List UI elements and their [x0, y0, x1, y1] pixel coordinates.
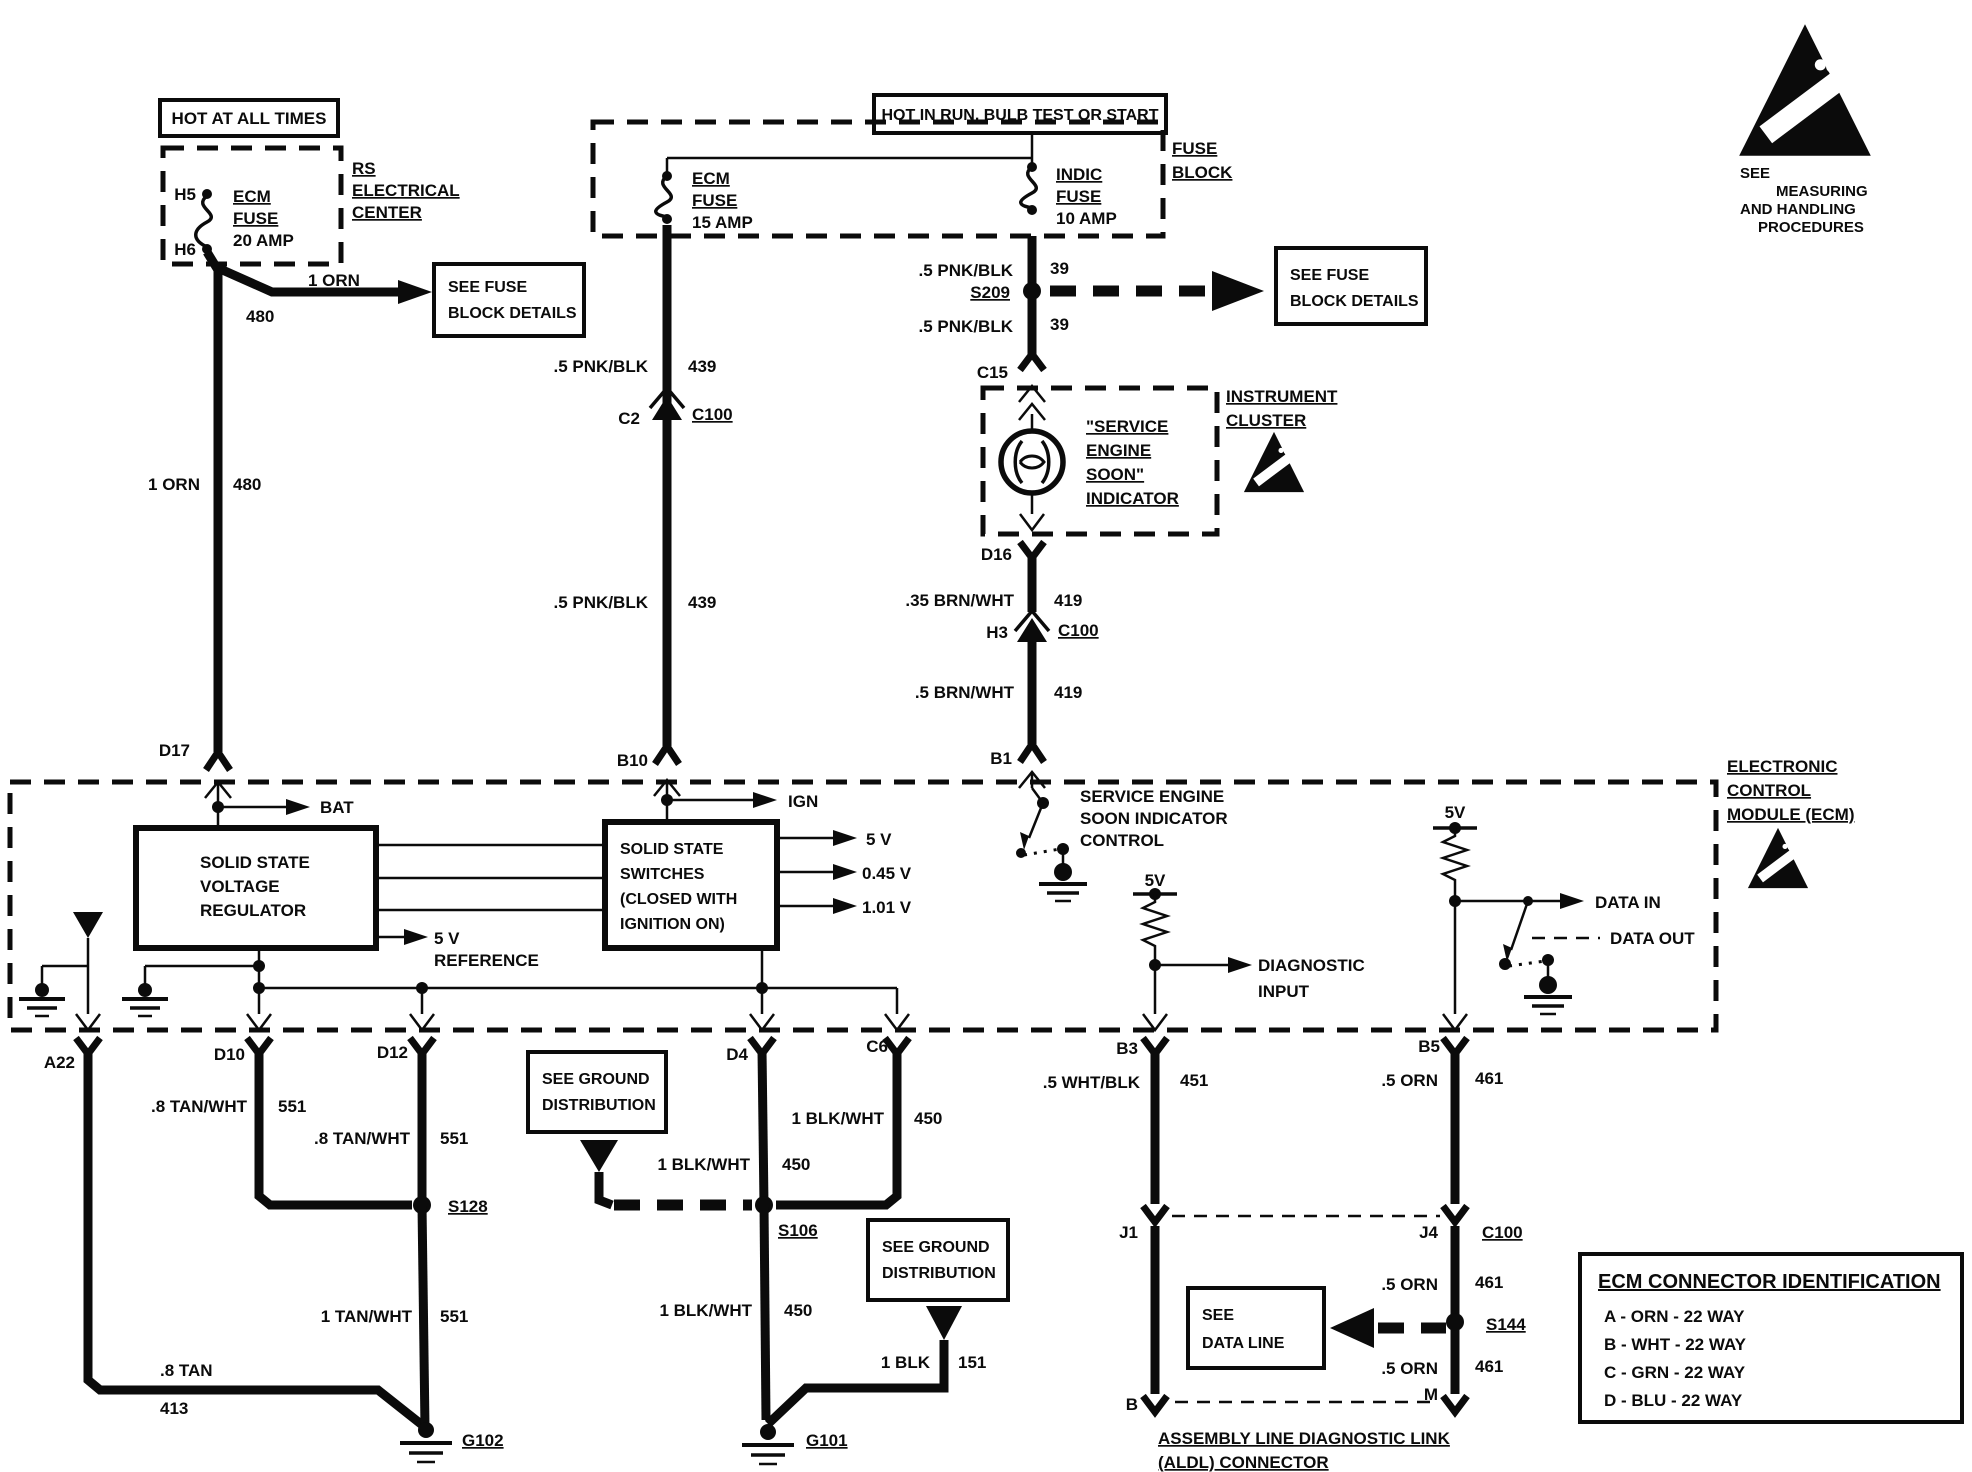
- rs-electrical-center: H5 H6 ECM FUSE 20 AMP RS ELECTRICAL CENT…: [163, 148, 460, 264]
- wire-tan-d10-color: .8 TAN/WHT: [151, 1097, 248, 1116]
- pointer-triangle-icon: [926, 1306, 962, 1340]
- ses-indicator-l2: ENGINE: [1086, 441, 1151, 460]
- see-data-l2: DATA LINE: [1202, 1335, 1285, 1352]
- s209-branch: .5 PNK/BLK 39 S209 .5 PNK/BLK 39 SEE FUS…: [919, 236, 1426, 356]
- fuse-block: ECM FUSE 15 AMP INDIC FUSE 10 AMP FUSE B…: [593, 122, 1233, 236]
- wire-tan-a22-color: .8 TAN: [160, 1361, 213, 1380]
- wire-orn461-mid-circuit: 461: [1475, 1273, 1503, 1292]
- aldl-label-l2: (ALDL) CONNECTOR: [1158, 1453, 1329, 1472]
- indic-fuse-10a-icon: [1021, 167, 1037, 208]
- wire-orn461-up-color: .5 ORN: [1381, 1071, 1438, 1090]
- banner-hot-at-all-times-label: HOT AT ALL TIMES: [172, 109, 327, 128]
- wire-brn419-dn-circuit: 419: [1054, 683, 1082, 702]
- esd-warning-note: SEE MEASURING AND HANDLING PROCEDURES: [1739, 24, 1871, 236]
- pullup-diag-5v-label: 5V: [1145, 871, 1166, 890]
- esd-hand-icon: [1748, 828, 1808, 888]
- see-fuse-left-l2: BLOCK DETAILS: [448, 305, 577, 322]
- pin-b5-label: B5: [1418, 1037, 1440, 1056]
- fuse-details-branch-left: 1 ORN 480 SEE FUSE BLOCK DETAILS: [218, 264, 584, 336]
- switch-arrow-icon: [1020, 832, 1029, 850]
- pin-j4-label: J4: [1419, 1223, 1438, 1242]
- esd-hand-icon: [1244, 432, 1304, 492]
- pin-c2-c100-label: C100: [692, 405, 733, 424]
- switches-l3: (CLOSED WITH: [620, 891, 737, 908]
- ecm-edge-connectors: [76, 1014, 1467, 1054]
- splice-s209-dot: [1023, 282, 1041, 300]
- pin-c6-label: C6: [866, 1037, 888, 1056]
- ground-symbol: [400, 1443, 452, 1462]
- pin-m-label: M: [1424, 1385, 1438, 1404]
- wire-brn419-up-color: .35 BRN/WHT: [905, 591, 1014, 610]
- wire-tan-d10-circuit: 551: [278, 1097, 306, 1116]
- ground-g101-label: G101: [806, 1431, 848, 1450]
- ses-indicator-l4: INDICATOR: [1086, 489, 1179, 508]
- regulator-l1: SOLID STATE: [200, 853, 310, 872]
- ecm-fuse-20a-icon: [196, 196, 212, 247]
- diagnostic-input-l1: DIAGNOSTIC: [1258, 956, 1365, 975]
- pin-j4-c100-label: C100: [1482, 1223, 1523, 1242]
- see-fuse-right-l2: BLOCK DETAILS: [1290, 293, 1419, 310]
- data-out-label: DATA OUT: [1610, 929, 1695, 948]
- connector-fork-icon: [1143, 1396, 1167, 1412]
- pin-h6-label: H6: [174, 240, 196, 259]
- ecm-connector-table: ECM CONNECTOR IDENTIFICATION A - ORN - 2…: [1580, 1254, 1962, 1422]
- esd-note-l3: AND HANDLING: [1740, 201, 1856, 218]
- table-row: A - ORN - 22 WAY: [1604, 1307, 1745, 1326]
- ground-g102-label: G102: [462, 1431, 504, 1450]
- connector-fork-icon: [655, 746, 679, 764]
- wire-pnk39-dn-color: .5 PNK/BLK: [919, 317, 1014, 336]
- arrow-right-icon: [833, 864, 857, 880]
- ground-wires-left: .8 TAN 413 .8 TAN/WHT 551 .8 TAN/WHT 551…: [88, 1050, 504, 1462]
- ground-g102-dot: [418, 1422, 434, 1438]
- wire-pnk39-up-color: .5 PNK/BLK: [919, 261, 1014, 280]
- rs-center-label-l1: RS: [352, 159, 376, 178]
- wire-orn461-dn-circuit: 461: [1475, 1357, 1503, 1376]
- arrow-right-icon: [398, 280, 432, 304]
- wire-pnk439-dn-circuit: 439: [688, 593, 716, 612]
- ses-indicator-l1: "SERVICE: [1086, 417, 1168, 436]
- ecm-fuse-20a-l3: 20 AMP: [233, 231, 294, 250]
- connector-fork-icon: [206, 752, 230, 770]
- fuse-block-label-l2: BLOCK: [1172, 163, 1233, 182]
- wire-pnk439-dn-color: .5 PNK/BLK: [554, 593, 649, 612]
- ecm-connector-table-title: ECM CONNECTOR IDENTIFICATION: [1598, 1271, 1941, 1293]
- connector-fork-icon: [1143, 1206, 1167, 1222]
- ign-label: IGN: [788, 792, 818, 811]
- see-ground-b-l2: DISTRIBUTION: [882, 1265, 996, 1282]
- ses-control-l2: SOON INDICATOR: [1080, 809, 1228, 828]
- ground-symbol: [19, 999, 65, 1016]
- wire-wht451-circuit: 451: [1180, 1071, 1208, 1090]
- wire-brn419-dn-color: .5 BRN/WHT: [915, 683, 1015, 702]
- wire-blk-d4-circuit: 450: [782, 1155, 810, 1174]
- ses-control-l3: CONTROL: [1080, 831, 1164, 850]
- bat-label: BAT: [320, 798, 354, 817]
- ecm-fuse-15a-l2: FUSE: [692, 191, 737, 210]
- esd-note-l1: SEE: [1740, 165, 1770, 182]
- wire-brn-419: .35 BRN/WHT 419 H3 C100 .5 BRN/WHT 419 B…: [905, 554, 1098, 768]
- splice-s144-dot: [1446, 1313, 1464, 1331]
- arrow-right-icon: [833, 898, 857, 914]
- banner-hot-at-all-times: HOT AT ALL TIMES: [160, 100, 338, 136]
- see-ground-a-l1: SEE GROUND: [542, 1071, 650, 1088]
- see-fuse-left-l1: SEE FUSE: [448, 279, 527, 296]
- pin-d16-label: D16: [981, 545, 1012, 564]
- resistor-icon: [1143, 894, 1167, 965]
- arrow-right-icon: [1560, 893, 1584, 909]
- ground-g101-dot: [760, 1424, 776, 1440]
- table-row: C - GRN - 22 WAY: [1604, 1363, 1746, 1382]
- data-in-label: DATA IN: [1595, 893, 1661, 912]
- fuse-block-label-l1: FUSE: [1172, 139, 1217, 158]
- splice-s209-label: S209: [970, 283, 1010, 302]
- connector-fork-icon: [1443, 1396, 1467, 1412]
- pin-h3-label: H3: [986, 623, 1008, 642]
- pin-j1-label: J1: [1119, 1223, 1138, 1242]
- ecm-module: ELECTRONIC CONTROL MODULE (ECM) BAT SOLI…: [10, 757, 1854, 1054]
- ground-symbol: [1524, 997, 1572, 1014]
- arrow-right-icon: [1212, 271, 1264, 311]
- aldl-connector: .5 WHT/BLK 451 .5 ORN 461 J1 J4 C100 .5 …: [1043, 1050, 1527, 1472]
- wire-orn-main-color: 1 ORN: [148, 475, 200, 494]
- see-ground-a-l2: DISTRIBUTION: [542, 1097, 656, 1114]
- wire-pnk39-dn-circuit: 39: [1050, 315, 1069, 334]
- see-fuse-right-l1: SEE FUSE: [1290, 267, 1369, 284]
- pin-h5-label: H5: [174, 185, 196, 204]
- wire-pnk39-up-circuit: 39: [1050, 259, 1069, 278]
- esd-note-l4: PROCEDURES: [1758, 219, 1864, 236]
- wiring-diagram-page: HOT AT ALL TIMES HOT IN RUN, BULB TEST O…: [0, 0, 1972, 1472]
- cluster-label-l2: CLUSTER: [1226, 411, 1306, 430]
- wire-blk-s106-circuit: 450: [784, 1301, 812, 1320]
- ref-5v-l1: 5 V: [434, 929, 460, 948]
- connector-fork-icon: [1443, 1206, 1467, 1222]
- esd-hand-icon: [1739, 24, 1871, 156]
- arrow-left-icon: [1330, 1308, 1374, 1348]
- ground-symbol: [742, 1445, 794, 1464]
- ground-wires-middle: SEE GROUND DISTRIBUTION 1 BLK/WHT 450 1 …: [528, 1050, 1008, 1464]
- wire-orn461-dn-color: .5 ORN: [1381, 1359, 1438, 1378]
- ecm-label-l2: CONTROL: [1727, 781, 1811, 800]
- wire-blk-d4-color: 1 BLK/WHT: [657, 1155, 750, 1174]
- wire-blk151-circuit: 151: [958, 1353, 986, 1372]
- wire-pnk439-up-color: .5 PNK/BLK: [554, 357, 649, 376]
- indic-fuse-l2: FUSE: [1056, 187, 1101, 206]
- ecm-fuse-15a-l3: 15 AMP: [692, 213, 753, 232]
- ecm-fuse-20a-l2: FUSE: [233, 209, 278, 228]
- indic-fuse-l1: INDIC: [1056, 165, 1102, 184]
- indic-fuse-l3: 10 AMP: [1056, 209, 1117, 228]
- switches-l4: IGNITION ON): [620, 916, 725, 933]
- pin-b10-label: B10: [617, 751, 648, 770]
- wire-orn-branch-circuit: 480: [246, 307, 274, 326]
- switches-l2: SWITCHES: [620, 866, 705, 883]
- out-045v-label: 0.45 V: [862, 864, 912, 883]
- pin-b1-label: B1: [990, 749, 1012, 768]
- esd-note-l2: MEASURING: [1776, 183, 1868, 200]
- instrument-cluster: C15 "SERVICE ENGINE SOON" INDICATOR INST…: [977, 354, 1338, 564]
- see-ground-b-l1: SEE GROUND: [882, 1239, 990, 1256]
- wire-orn461-up-circuit: 461: [1475, 1069, 1503, 1088]
- wire-blk-s106-color: 1 BLK/WHT: [659, 1301, 752, 1320]
- wire-pnk439-up-circuit: 439: [688, 357, 716, 376]
- ecm-fuse-15a-l1: ECM: [692, 169, 730, 188]
- wire-blk-c6-circuit: 450: [914, 1109, 942, 1128]
- wire-tan-d12-color: .8 TAN/WHT: [314, 1129, 411, 1148]
- wire-orn-branch-color: 1 ORN: [308, 271, 360, 290]
- arrow-right-icon: [753, 792, 777, 808]
- pin-d4-label: D4: [726, 1045, 748, 1064]
- pin-d17-label: D17: [159, 741, 190, 760]
- pin-h3-c100-label: C100: [1058, 621, 1099, 640]
- pin-b-label: B: [1126, 1395, 1138, 1414]
- see-data-l1: SEE: [1202, 1307, 1234, 1324]
- wire-tan-s128-color: 1 TAN/WHT: [321, 1307, 413, 1326]
- arrow-right-icon: [833, 830, 857, 846]
- cluster-label-l1: INSTRUMENT: [1226, 387, 1338, 406]
- resistor-icon: [1443, 828, 1467, 901]
- regulator-l3: REGULATOR: [200, 901, 306, 920]
- regulator-l2: VOLTAGE: [200, 877, 280, 896]
- wire-blk151-color: 1 BLK: [881, 1353, 931, 1372]
- ecm-label-l1: ELECTRONIC: [1727, 757, 1838, 776]
- wire-blk-c6-color: 1 BLK/WHT: [791, 1109, 884, 1128]
- pin-d12-label: D12: [377, 1043, 408, 1062]
- wire-orn-main: 1 ORN 480 D17: [148, 252, 261, 770]
- connector-fork-icon: [1020, 354, 1044, 370]
- pin-c15-label: C15: [977, 363, 1008, 382]
- wire-pnk-439: .5 PNK/BLK 439 C2 C100 .5 PNK/BLK 439 B1…: [554, 225, 733, 770]
- ecm-fuse-15a-icon: [656, 176, 672, 217]
- rs-center-label-l2: ELECTRICAL: [352, 181, 460, 200]
- pullup-data-5v-label: 5V: [1445, 803, 1466, 822]
- wire-orn461-mid-color: .5 ORN: [1381, 1275, 1438, 1294]
- splice-s106-label: S106: [778, 1221, 818, 1240]
- ground-symbol: [122, 999, 168, 1016]
- out-101v-label: 1.01 V: [862, 898, 912, 917]
- rs-center-label-l3: CENTER: [352, 203, 422, 222]
- banner-hot-in-run: HOT IN RUN, BULB TEST OR START: [874, 95, 1166, 133]
- pointer-triangle-icon: [580, 1140, 618, 1172]
- diagnostic-input-l2: INPUT: [1258, 982, 1310, 1001]
- ecm-label-l3: MODULE (ECM): [1727, 805, 1854, 824]
- wire-orn-main-circuit: 480: [233, 475, 261, 494]
- pin-a22-label: A22: [44, 1053, 75, 1072]
- aldl-label-l1: ASSEMBLY LINE DIAGNOSTIC LINK: [1158, 1429, 1451, 1448]
- switches-l1: SOLID STATE: [620, 841, 724, 858]
- indicator-bulb-icon: [1001, 431, 1063, 493]
- arrow-right-icon: [286, 799, 310, 815]
- arrow-right-icon: [1228, 957, 1252, 973]
- pin-d10-label: D10: [214, 1045, 245, 1064]
- ground-symbol: [1039, 884, 1087, 901]
- wire-brn419-up-circuit: 419: [1054, 591, 1082, 610]
- ref-5v-l2: REFERENCE: [434, 951, 539, 970]
- table-row: D - BLU - 22 WAY: [1604, 1391, 1743, 1410]
- antenna-triangle-icon: [73, 912, 103, 938]
- wire-tan-s128-circuit: 551: [440, 1307, 468, 1326]
- wire-wht451-color: .5 WHT/BLK: [1043, 1073, 1141, 1092]
- pin-c2-label: C2: [618, 409, 640, 428]
- table-row: B - WHT - 22 WAY: [1604, 1335, 1747, 1354]
- out-5v-label: 5 V: [866, 830, 892, 849]
- splice-s128-label: S128: [448, 1197, 488, 1216]
- ses-indicator-l3: SOON": [1086, 465, 1144, 484]
- splice-s144-label: S144: [1486, 1315, 1526, 1334]
- connector-fork-icon: [1020, 744, 1044, 762]
- ses-control-l1: SERVICE ENGINE: [1080, 787, 1224, 806]
- arrow-right-icon: [404, 929, 428, 945]
- pin-b3-label: B3: [1116, 1039, 1138, 1058]
- wire-tan-a22-circuit: 413: [160, 1399, 188, 1418]
- wire-tan-d12-circuit: 551: [440, 1129, 468, 1148]
- ecm-fuse-20a-l1: ECM: [233, 187, 271, 206]
